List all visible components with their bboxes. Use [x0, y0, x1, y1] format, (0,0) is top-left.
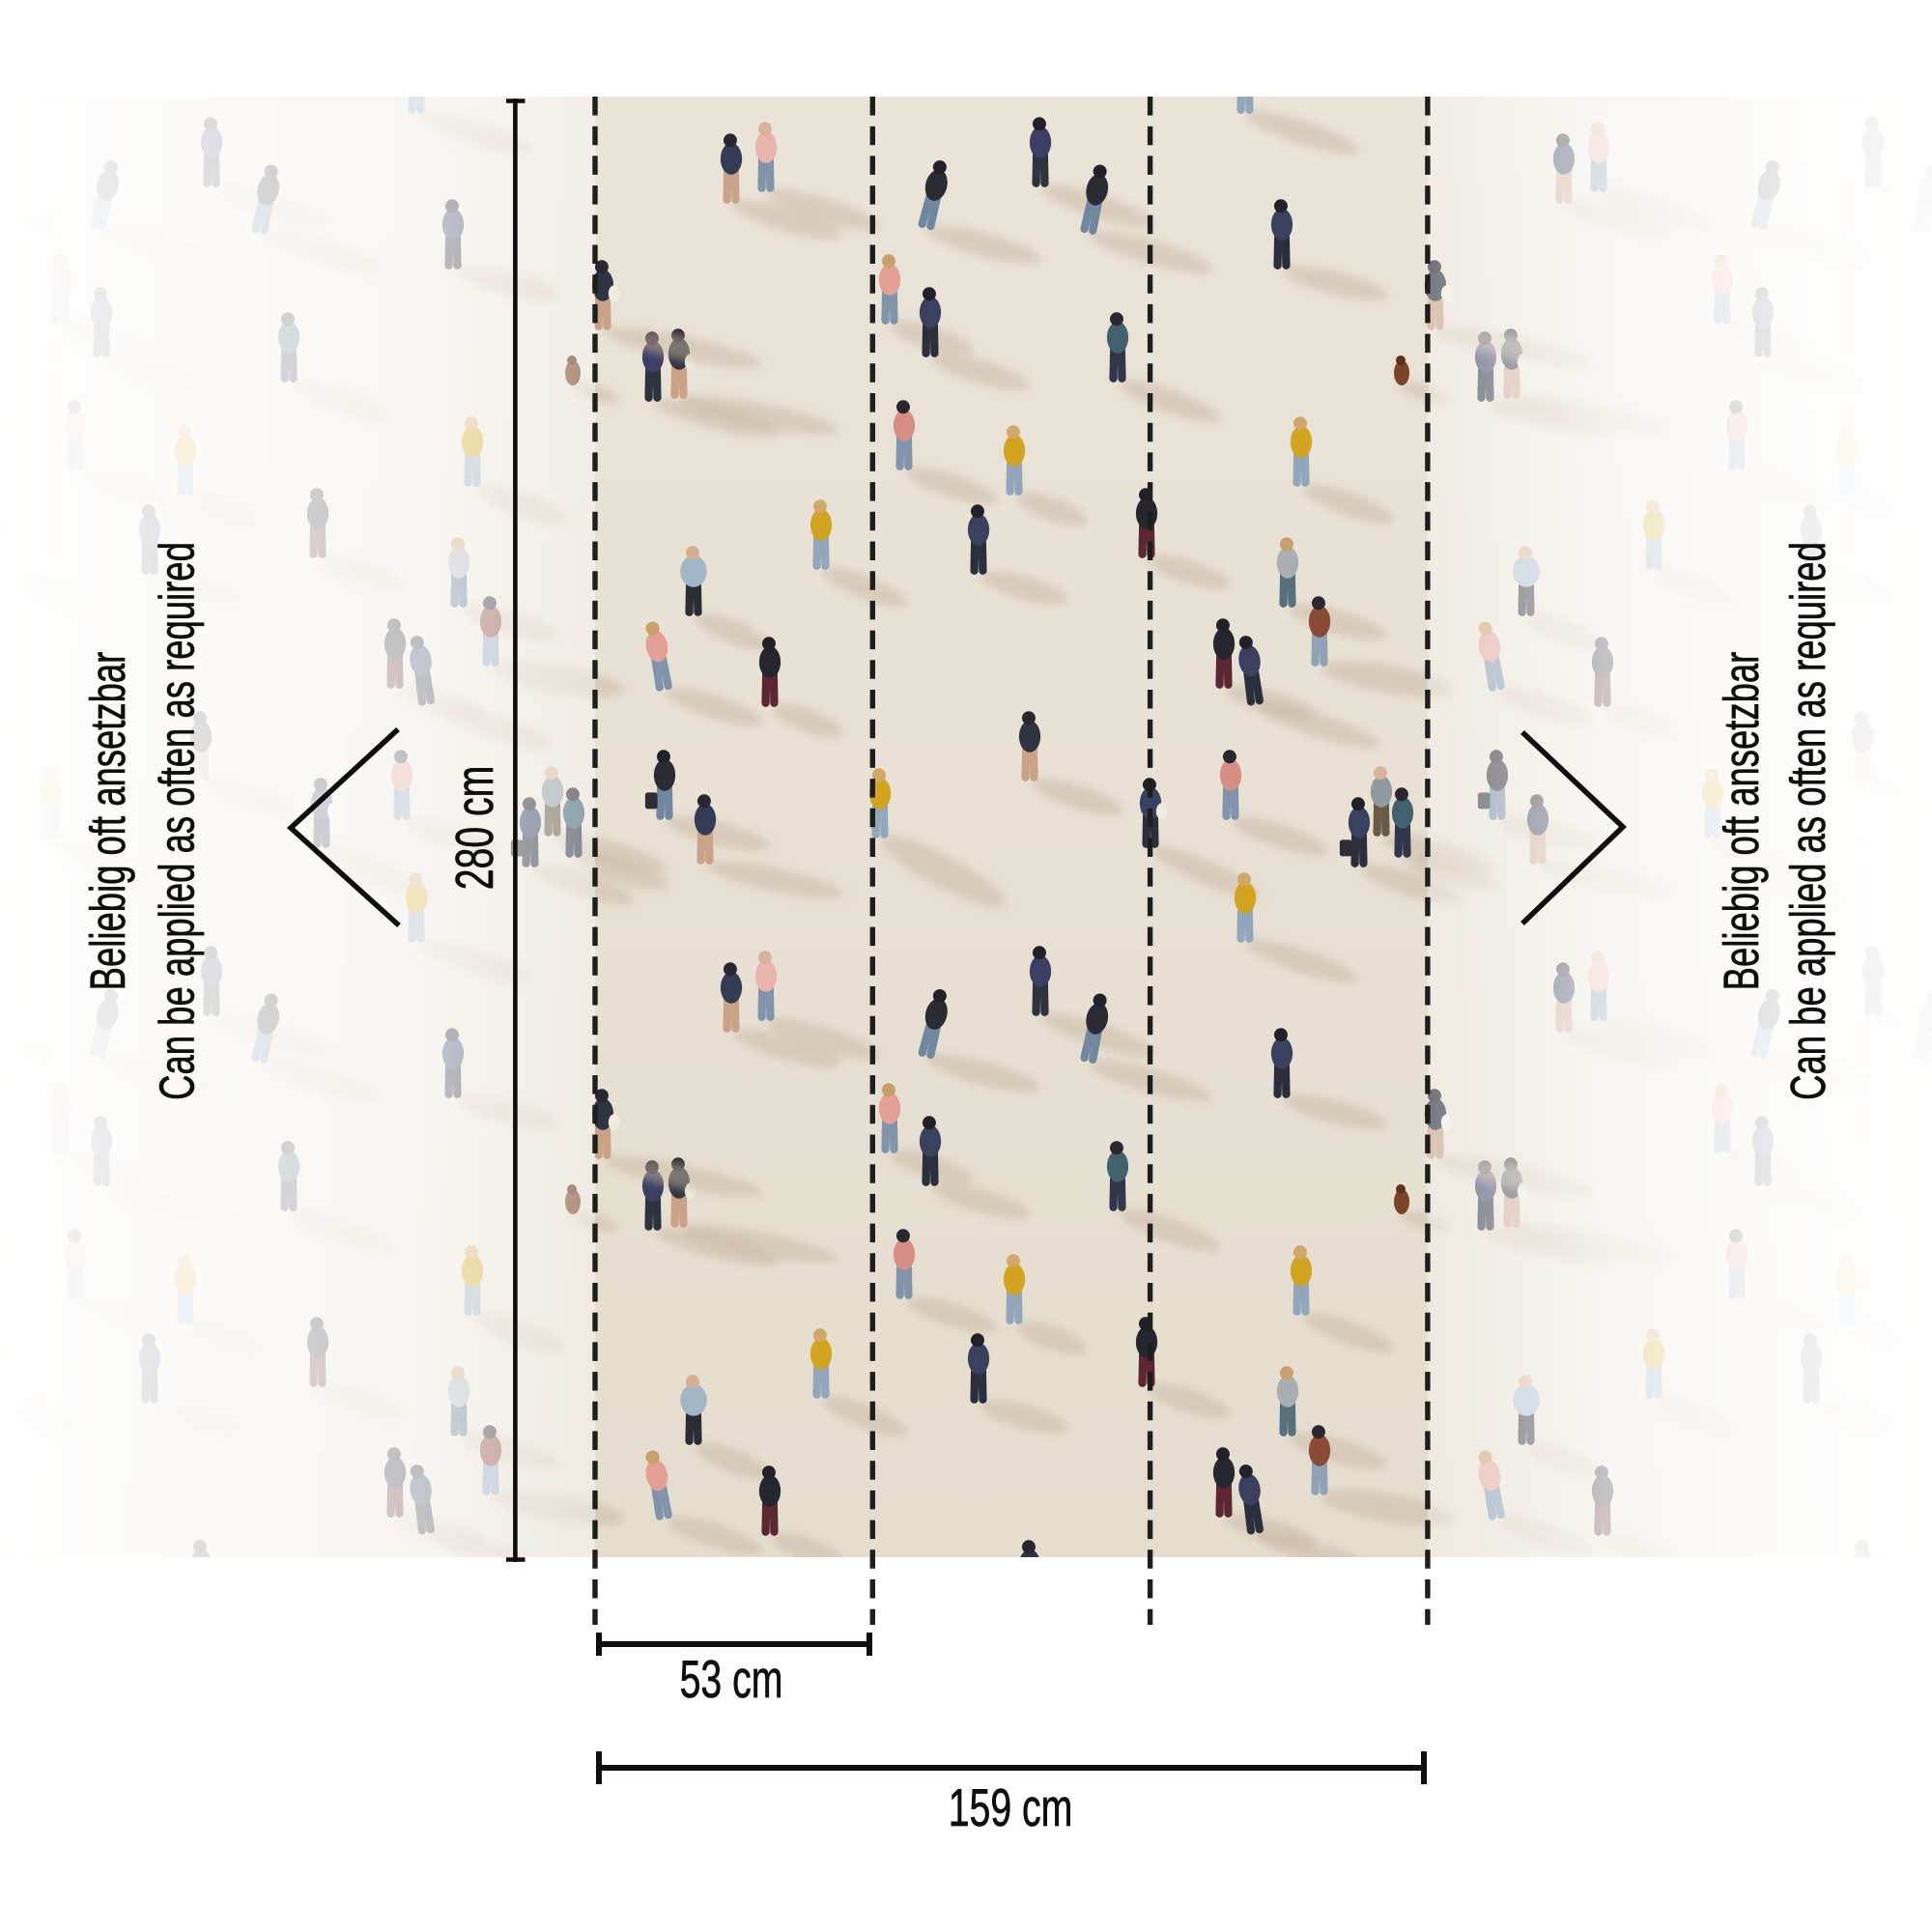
svg-text:53 cm: 53 cm — [680, 1651, 783, 1710]
svg-text:Can be applied as often as req: Can be applied as often as required — [1781, 542, 1835, 1100]
svg-text:280 cm: 280 cm — [446, 766, 505, 891]
svg-text:Beliebig oft ansetzbar: Beliebig oft ansetzbar — [81, 651, 135, 990]
svg-text:159 cm: 159 cm — [949, 1779, 1073, 1838]
svg-text:Beliebig oft ansetzbar: Beliebig oft ansetzbar — [1715, 651, 1769, 990]
svg-text:Can be applied as often as req: Can be applied as often as required — [151, 542, 205, 1100]
